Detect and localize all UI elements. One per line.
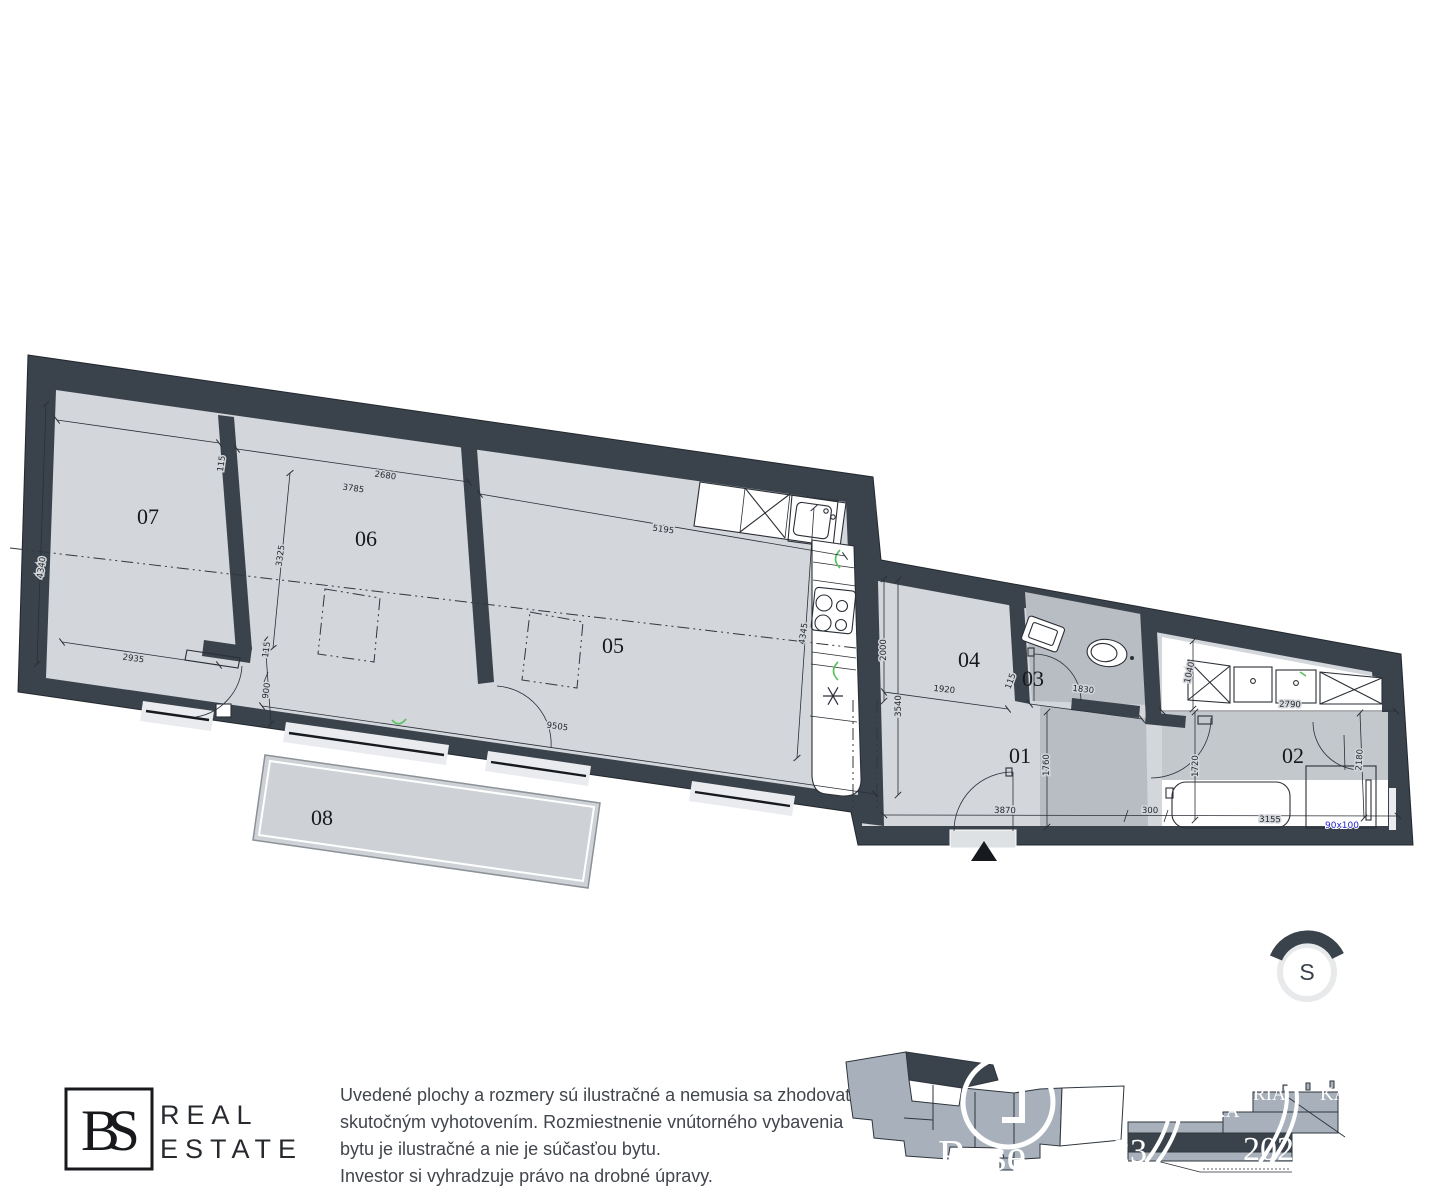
- room-label-07: 07: [137, 504, 159, 529]
- north-label: S: [1299, 959, 1314, 985]
- room-label-06: 06: [355, 526, 377, 551]
- building: 0706050403010208 26801153785434033255195…: [10, 355, 1413, 861]
- page: 0706050403010208 26801153785434033255195…: [0, 0, 1434, 1196]
- north-indicator: S: [1276, 937, 1338, 999]
- dim-label-12: 3540: [894, 695, 904, 717]
- elevation: RIAKAKA232020: [1113, 1081, 1348, 1172]
- watermark-fragment-1: KA: [1212, 1101, 1240, 1122]
- dim-label-21: 1720: [1191, 755, 1201, 777]
- watermark-fragment-3: 23: [1113, 1133, 1147, 1170]
- dim-label-17: 3870: [994, 806, 1016, 816]
- entrance: [950, 830, 1016, 861]
- dim-label-16: 1760: [1042, 754, 1052, 776]
- shower-size-label: 90x100: [1325, 821, 1359, 831]
- floor-hallway: [1040, 705, 1148, 826]
- room-label-01: 01: [1009, 743, 1031, 768]
- watermark-fragment-0: RIA: [1253, 1084, 1286, 1105]
- dim-label-23: 3155: [1259, 815, 1281, 825]
- brand-logo: BS REAL ESTATE: [66, 1089, 303, 1169]
- disclaimer-line-3: bytu je ilustračné a nie je súčasťou byt…: [340, 1139, 661, 1159]
- logo-word-estate: ESTATE: [160, 1134, 303, 1164]
- logo-monogram: BS: [81, 1098, 137, 1163]
- room-label-03: 03: [1022, 666, 1044, 691]
- room-label-04: 04: [958, 647, 980, 672]
- keyplan: Rose ESTATE: [846, 1052, 1124, 1182]
- disclaimer-line-1: Uvedené plochy a rozmery sú ilustračné a…: [340, 1085, 876, 1105]
- disclaimer-text: Uvedené plochy a rozmery sú ilustračné a…: [340, 1085, 876, 1186]
- right-wall-niche: [1389, 788, 1396, 830]
- disclaimer-line-4: Investor si vyhradzuje právo na drobné ú…: [340, 1166, 713, 1186]
- floor-left-block: [46, 390, 858, 795]
- room-label-02: 02: [1282, 743, 1304, 768]
- logo-word-real: REAL: [160, 1100, 259, 1130]
- floorplan-canvas: 0706050403010208 26801153785434033255195…: [0, 0, 1434, 1196]
- watermark-estate: ESTATE: [985, 1172, 1047, 1182]
- disclaimer-line-2: skutočným vyhotovením. Rozmiestnenie vnú…: [340, 1112, 844, 1132]
- dim-label-11: 2000: [879, 639, 889, 661]
- room-label-05: 05: [602, 633, 624, 658]
- dim-label-22: 2180: [1354, 749, 1365, 771]
- watermark-fragment-2: KA: [1320, 1084, 1348, 1105]
- watermark-fragment-4: 2020: [1243, 1131, 1311, 1168]
- dim-label-18: 300: [1142, 806, 1158, 816]
- room-label-08: 08: [311, 805, 333, 830]
- dim-label-20: 2790: [1279, 700, 1301, 710]
- kitchen-side-counter: [812, 540, 861, 796]
